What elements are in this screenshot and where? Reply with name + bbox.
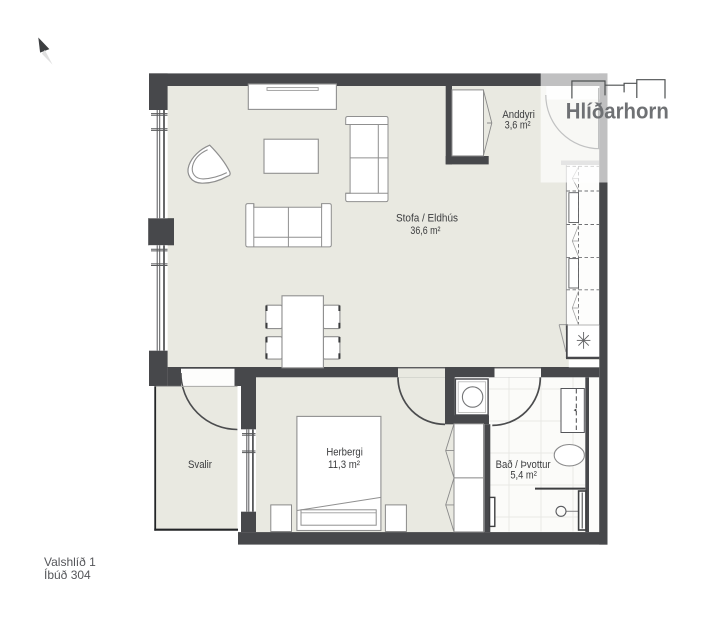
svg-text:Herbergi: Herbergi (326, 446, 363, 458)
svg-text:5,4 m²: 5,4 m² (510, 469, 537, 481)
svg-text:Hlíðarhorn: Hlíðarhorn (566, 99, 669, 124)
svg-text:36,6 m²: 36,6 m² (410, 225, 440, 237)
svg-text:Svalir: Svalir (188, 459, 212, 471)
svg-text:3,6 m²: 3,6 m² (505, 119, 531, 131)
svg-text:Stofa / Eldhús: Stofa / Eldhús (396, 213, 458, 225)
svg-text:Valshlíð 1: Valshlíð 1 (44, 555, 96, 569)
svg-text:Íbúð 304: Íbúð 304 (44, 567, 91, 582)
svg-text:11,3 m²: 11,3 m² (328, 459, 360, 471)
